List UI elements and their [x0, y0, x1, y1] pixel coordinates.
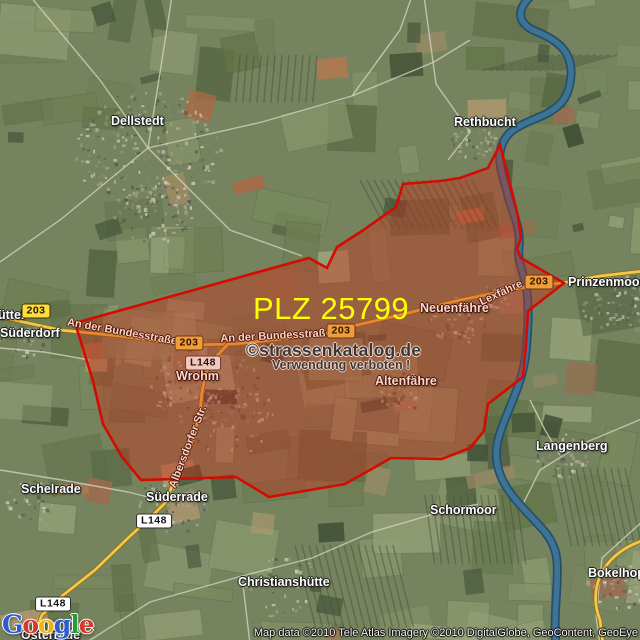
- google-logo-letter: o: [22, 610, 38, 639]
- route-badge-203: 203: [174, 336, 203, 351]
- route-badge-203: 203: [524, 275, 553, 290]
- satellite-map-canvas: [0, 0, 640, 640]
- route-badge-l148: L148: [136, 514, 172, 529]
- map-viewport[interactable]: DellstedtRethbuchtüttelSüderdorfPrinzenm…: [0, 0, 640, 640]
- google-logo-letter: l: [70, 610, 79, 639]
- google-logo-letter: g: [54, 610, 70, 639]
- route-badge-l148: L148: [185, 356, 221, 371]
- google-logo[interactable]: Google: [2, 610, 94, 639]
- route-badge-203: 203: [21, 304, 50, 319]
- google-logo-letter: o: [38, 610, 54, 639]
- route-badge-203: 203: [326, 324, 355, 339]
- google-logo-letter: G: [2, 610, 22, 639]
- google-logo-letter: e: [79, 610, 94, 639]
